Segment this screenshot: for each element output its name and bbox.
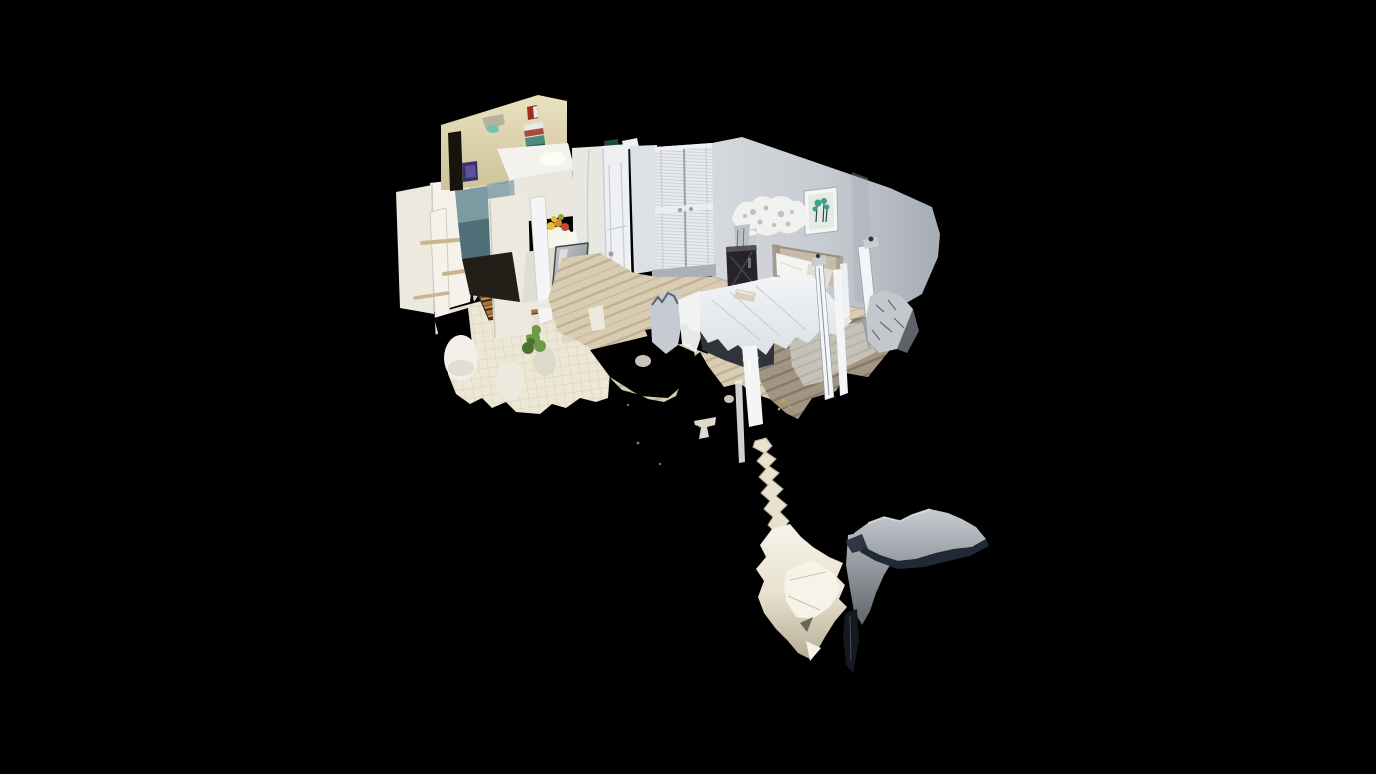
floor-debris bbox=[635, 355, 651, 367]
fixture-blob bbox=[496, 361, 524, 401]
door-knob bbox=[609, 252, 614, 257]
fragment-bit bbox=[724, 395, 734, 403]
post-knob bbox=[869, 237, 874, 242]
debris-speck bbox=[627, 404, 629, 406]
wall-strip bbox=[630, 145, 659, 274]
black-backdrop bbox=[0, 0, 1376, 774]
gold-ornament bbox=[789, 406, 792, 409]
framed-picture bbox=[804, 187, 838, 235]
gold-ornament bbox=[781, 399, 785, 403]
cabinet-light-glow bbox=[540, 152, 566, 166]
closet-knob bbox=[689, 207, 693, 211]
closet-knob bbox=[678, 208, 682, 212]
debris-speck bbox=[659, 463, 661, 465]
doorway-opening bbox=[448, 131, 463, 191]
sconce-glow bbox=[487, 125, 499, 133]
wall-art-purple-inner bbox=[465, 165, 476, 178]
closet bbox=[652, 143, 716, 282]
toilet-seat-shadow bbox=[448, 360, 474, 376]
post-knob bbox=[816, 254, 820, 258]
nightstand-glint bbox=[748, 258, 751, 268]
fixture-blob bbox=[534, 348, 556, 376]
dollhouse-viewport[interactable] bbox=[0, 0, 1376, 774]
under-counter-dark bbox=[462, 252, 520, 302]
post-glint bbox=[748, 360, 751, 374]
gold-ornament bbox=[778, 408, 781, 411]
debris-speck bbox=[637, 442, 640, 445]
dollhouse-model bbox=[0, 0, 1376, 774]
